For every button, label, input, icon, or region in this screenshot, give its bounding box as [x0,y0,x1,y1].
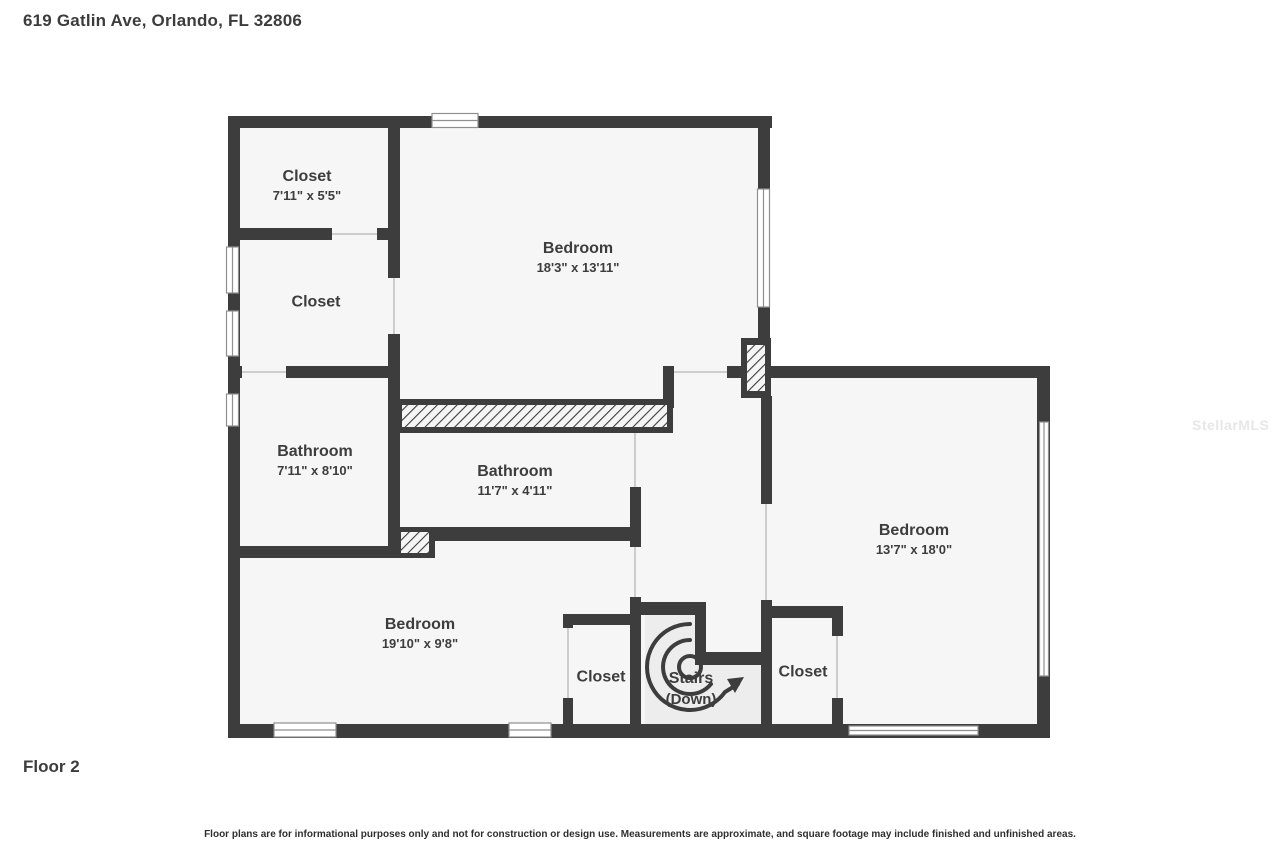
disclaimer-text: Floor plans are for informational purpos… [0,829,1280,840]
room-name: Closet [779,663,828,684]
room-label-bathroom-center: Bathroom 11'7" x 4'11" [477,462,553,500]
floorplan-graphic [0,0,1280,853]
room-label-bathroom-left: Bathroom 7'11" x 8'10" [277,442,353,480]
room-dims: 11'7" x 4'11" [477,483,553,500]
room-dims: 7'11" x 8'10" [277,463,353,480]
room-label-closet-bottom-right: Closet [779,663,828,684]
floorplan-page: 619 Gatlin Ave, Orlando, FL 32806 [0,0,1280,853]
room-name: Closet [577,668,626,689]
watermark: StellarMLS [1192,417,1269,433]
room-label-bedroom-top: Bedroom 18'3" x 13'11" [537,239,620,277]
room-dims: (Down) [666,690,717,710]
room-dims: 18'3" x 13'11" [537,260,620,277]
room-name: Bathroom [277,442,353,463]
room-label-stairs: Stairs (Down) [666,669,717,709]
room-label-bedroom-bottom: Bedroom 19'10" x 9'8" [382,615,458,653]
room-dims: 19'10" x 9'8" [382,636,458,653]
room-name: Bedroom [876,521,952,542]
room-name: Closet [273,167,341,188]
room-name: Bathroom [477,462,553,483]
room-dims: 7'11" x 5'5" [273,188,341,205]
floor-label: Floor 2 [23,757,80,777]
room-name: Bedroom [537,239,620,260]
room-label-bedroom-right: Bedroom 13'7" x 18'0" [876,521,952,559]
room-name: Closet [292,293,341,314]
room-name: Bedroom [382,615,458,636]
room-label-closet-top-left: Closet 7'11" x 5'5" [273,167,341,205]
room-label-closet-bottom: Closet [577,668,626,689]
room-dims: 13'7" x 18'0" [876,542,952,559]
room-label-closet-mid-left: Closet [292,293,341,314]
room-name: Stairs [666,669,717,690]
